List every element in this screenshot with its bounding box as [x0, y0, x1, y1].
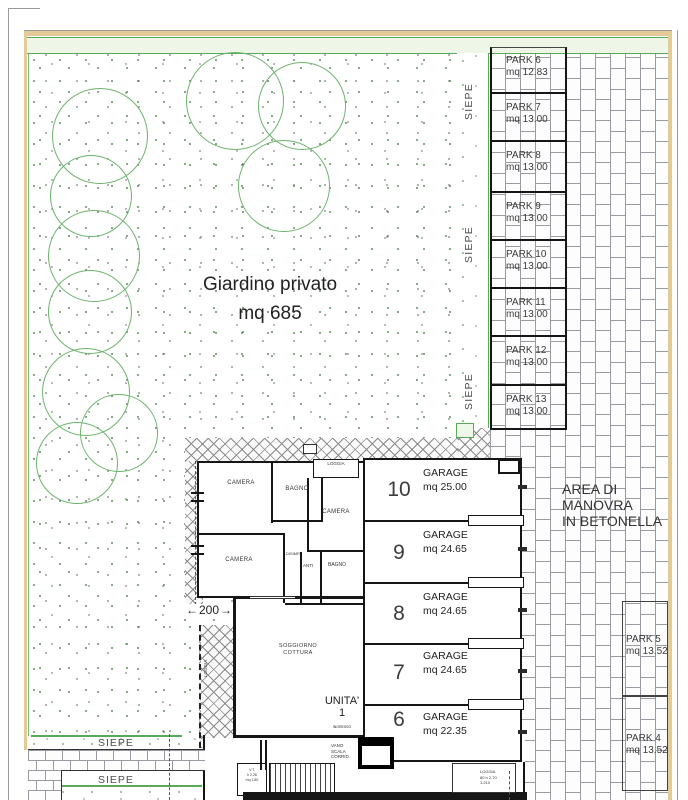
hedge-corner-square — [456, 423, 474, 438]
parking-stall: PARK 6mq 12.83 — [506, 55, 548, 79]
stall-divider — [622, 695, 668, 697]
boundary-line-right — [677, 30, 678, 800]
loggia-balcony-hatch — [199, 625, 233, 748]
loggia-balcony-label: LOGGIA — [203, 655, 208, 677]
window-tick — [191, 545, 204, 547]
tan-border-left — [24, 35, 27, 750]
siepe-line-2 — [62, 785, 202, 787]
dimension-tick — [518, 669, 527, 673]
tan-border-right — [668, 31, 672, 800]
stall-divider — [490, 335, 567, 337]
boundary-line-top — [8, 8, 40, 9]
tree-circle — [36, 422, 118, 504]
ingresso-label: INGRESSO — [320, 721, 364, 733]
garage-number: 6 — [385, 708, 413, 732]
walkway-dashed-line — [195, 461, 196, 605]
room-soggiorno: SOGGIORNO COTTURA — [260, 643, 336, 657]
stall-divider — [490, 140, 567, 142]
interior-wall — [197, 596, 237, 598]
siepe-label-v1: SIEPE — [463, 72, 475, 120]
window-tick — [191, 492, 204, 494]
garage-label: GARAGEmq 22.35 — [423, 710, 468, 738]
tree-circle — [238, 140, 330, 232]
parking-stall: PARK 12mq 13.00 — [506, 345, 548, 369]
stall-divider — [490, 384, 567, 386]
interior-wall — [307, 550, 363, 552]
window-tick — [191, 500, 204, 502]
parking-stall: PARK 7mq 13.00 — [506, 102, 548, 126]
garage-door — [468, 638, 524, 649]
garage-label: GARAGEmq 24.65 — [423, 590, 468, 618]
garden-title: Giardino privato — [160, 270, 380, 299]
stall-divider — [490, 92, 567, 94]
maneuver-area-label: AREA DI MANOVRA IN BETONELLA — [562, 481, 662, 529]
garage-number: 9 — [385, 541, 413, 565]
stall-divider — [490, 239, 567, 241]
site-plan-sheet: Giardino privato mq 685 SIEPE SIEPE SIEP… — [0, 0, 688, 800]
dimension-tick — [518, 547, 527, 551]
garage-door — [468, 577, 524, 588]
garage-number: 7 — [385, 661, 413, 685]
room-disimp: DISIMP. — [286, 551, 300, 556]
window-symbol — [250, 596, 295, 600]
boundary-dashed-2 — [509, 771, 510, 800]
garage-door — [498, 459, 520, 474]
room-bagno-1: BAGNO — [276, 486, 318, 493]
elevator-shaft — [358, 737, 394, 769]
garage-door — [468, 699, 524, 710]
parking-stall: PARK 9mq 13.00 — [506, 201, 548, 225]
siepe-label-v2: SIEPE — [463, 215, 475, 263]
garage-door — [468, 515, 524, 526]
bottom-wall — [243, 792, 527, 800]
tree-circle — [48, 270, 132, 354]
room-anti: ANTI — [303, 563, 313, 568]
dimension-tick — [518, 730, 527, 734]
garage-number: 8 — [385, 602, 413, 626]
interior-wall — [197, 533, 285, 535]
garage-number: 10 — [385, 478, 413, 502]
parking-stall: PARK 5mq 13.52 — [626, 634, 668, 658]
garden-area: mq 685 — [160, 299, 380, 328]
interior-wall — [285, 603, 363, 605]
hedge-band-top — [27, 37, 668, 54]
tan-border-top — [24, 30, 672, 36]
window-tick — [191, 553, 204, 555]
room-camera-1: CAMERA — [214, 480, 268, 487]
brick-path-left — [28, 770, 62, 800]
elevator-cab-top — [362, 741, 390, 746]
garage-label: GARAGEmq 24.65 — [423, 649, 468, 677]
interior-wall — [283, 533, 285, 603]
parking-stall: PARK 11mq 13.00 — [506, 297, 548, 321]
parking-stall: PARK 4mq 13.52 — [626, 733, 668, 757]
room-camera-3: CAMERA — [212, 557, 266, 564]
tree-circle — [258, 62, 346, 150]
garden-title-block: Giardino privato mq 685 — [160, 270, 380, 328]
stall-divider — [490, 287, 567, 289]
brick-path — [28, 749, 205, 771]
dimension-tick — [518, 485, 527, 489]
garage-label: GARAGEmq 25.00 — [423, 466, 468, 494]
interior-wall — [271, 520, 323, 522]
interior-wall — [271, 463, 273, 523]
loggia-bottom-label: LOGGIA 80 h 2.70 1.210 — [480, 769, 497, 786]
unit-label: UNITA' 1 INGRESSO — [320, 695, 364, 733]
parking-stall: PARK 13mq 13.00 — [506, 394, 548, 418]
stall-divider — [490, 191, 567, 193]
room-camera-2: CAMERA — [314, 509, 358, 516]
siepe-label-h1: SIEPE — [98, 737, 134, 749]
loggia-top-label: LOGGIA — [313, 461, 359, 466]
boundary-line-left — [8, 8, 9, 800]
parking-stall: PARK 10mq 13.00 — [506, 249, 548, 273]
dimension-200: 200 — [184, 604, 234, 618]
corridor-wall-right — [523, 762, 525, 792]
vent-symbol — [303, 444, 317, 454]
siepe-label-v3: SIEPE — [463, 362, 475, 410]
garage-label: GARAGEmq 24.65 — [423, 528, 468, 556]
room-bagno-2: BAGNO — [328, 563, 346, 569]
parking-stall: PARK 8mq 13.00 — [506, 150, 548, 174]
boundary-dashed-1 — [169, 734, 170, 800]
dimension-tick — [518, 608, 527, 612]
vt-room-label: V.T. h 2.28 mq 1.80 — [238, 768, 266, 783]
vano-scala-label: VANO SCALA CORRID. — [331, 743, 350, 760]
